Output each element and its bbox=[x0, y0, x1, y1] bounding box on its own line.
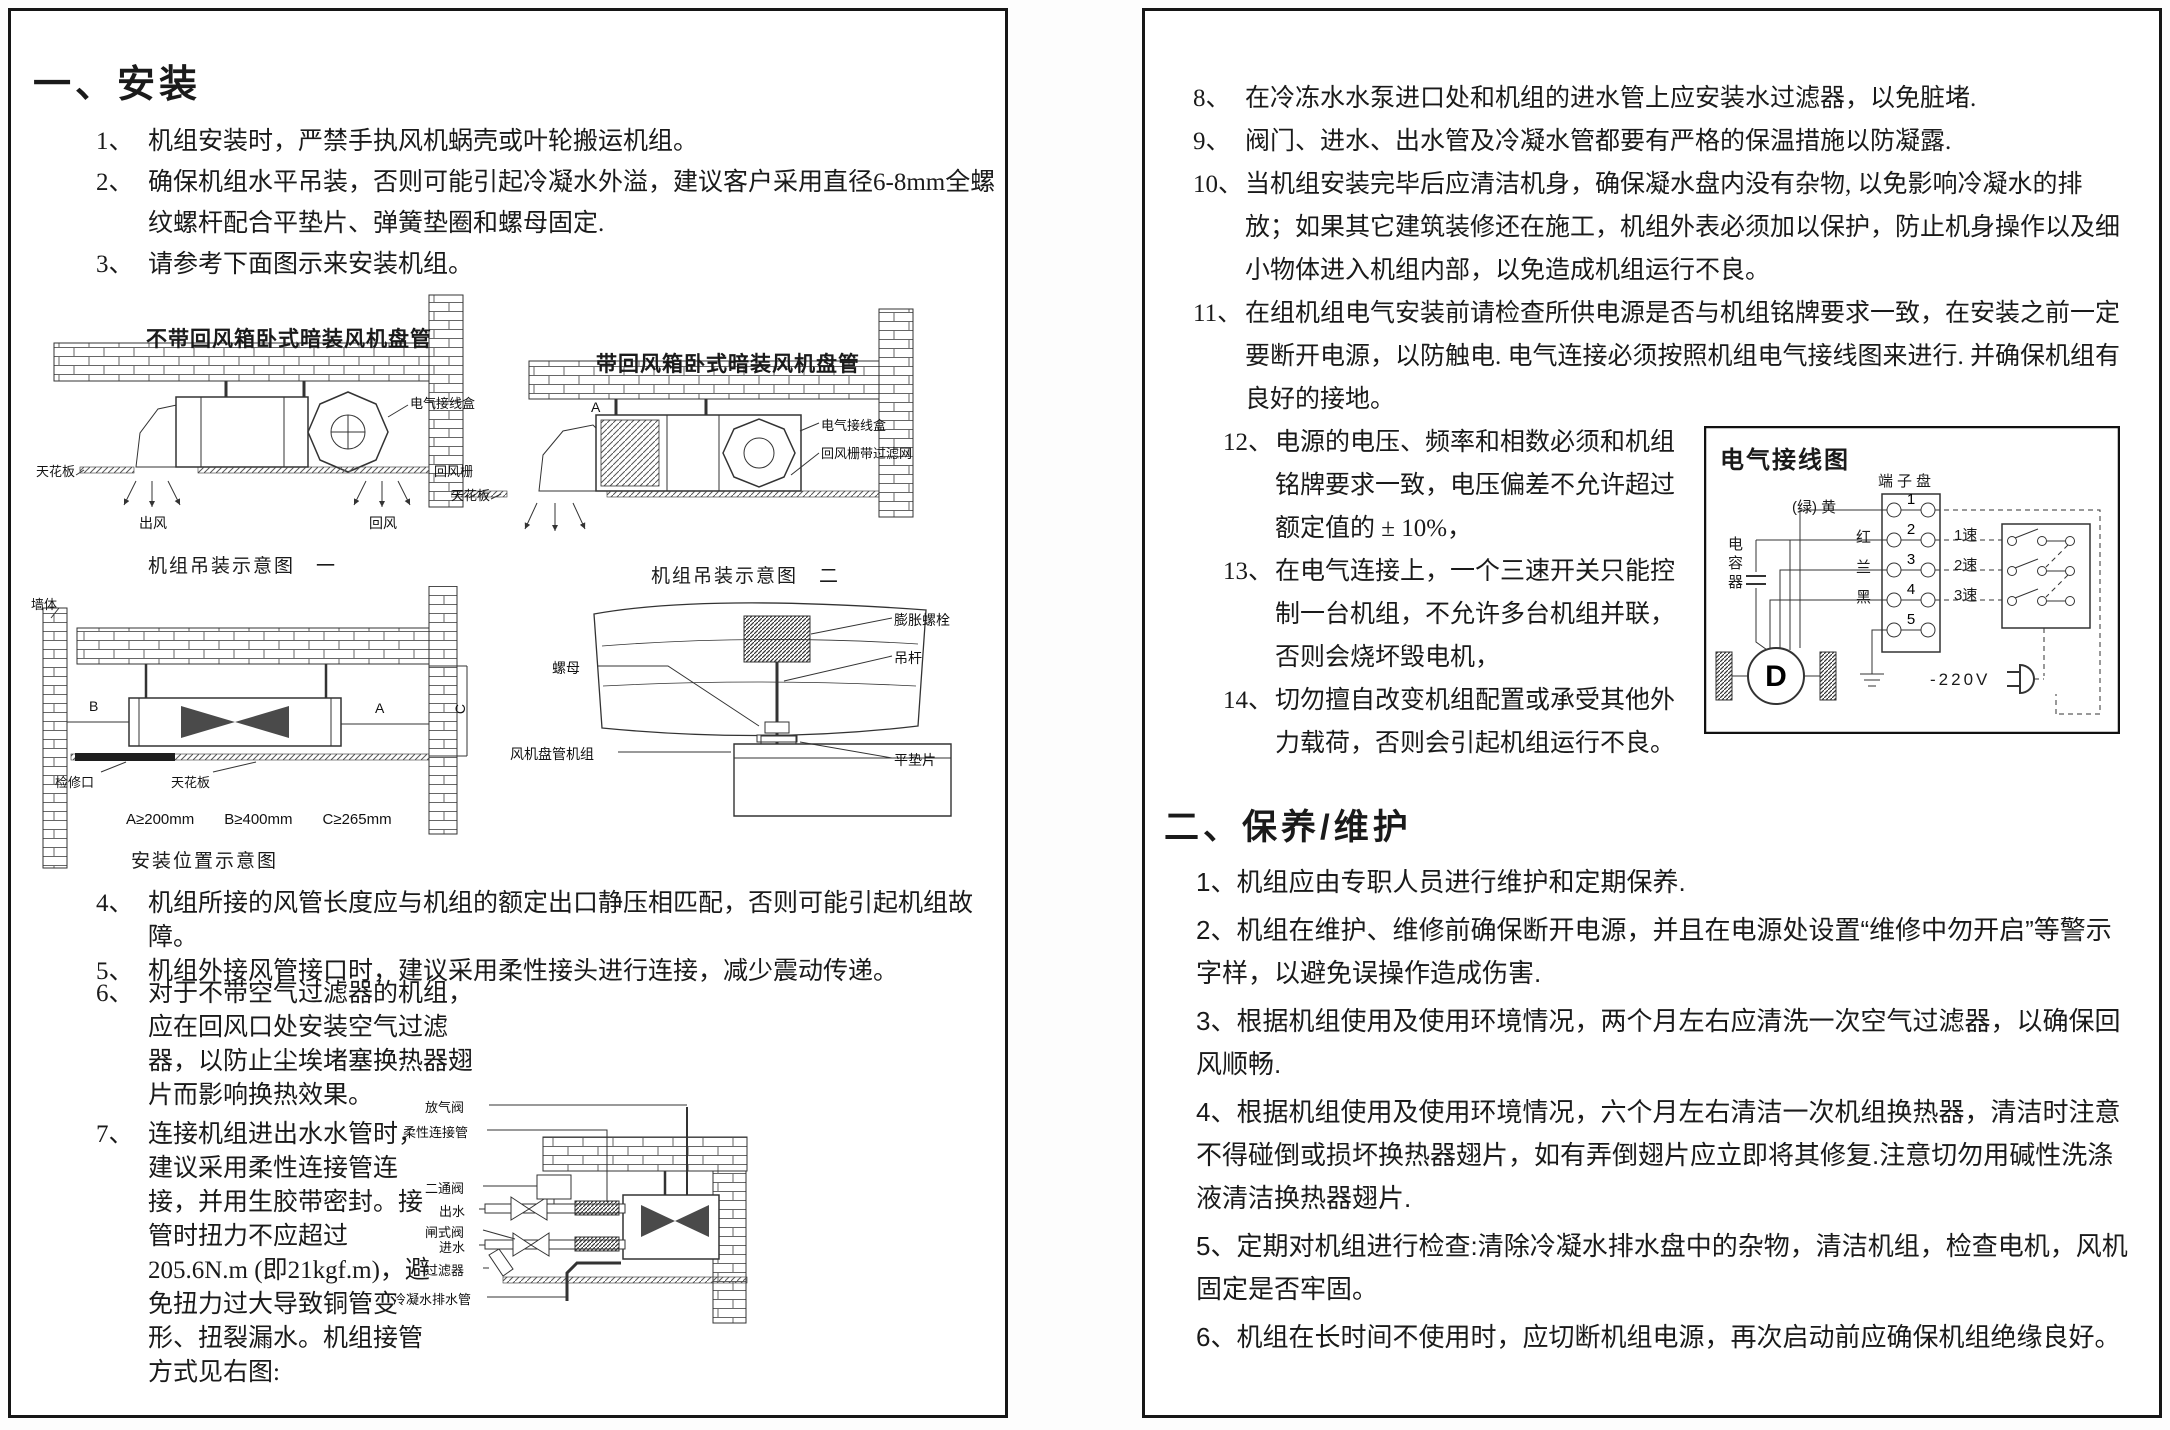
item-text: 阀门、进水、出水管及冷凝水管都要有严格的保温措施以防凝露. bbox=[1245, 120, 2123, 163]
terminal-3: 3 bbox=[1907, 551, 1915, 568]
diagram-hanger-detail: 螺母 风机盘管机组 膨胀螺栓 吊杆 平垫片 bbox=[506, 586, 1001, 881]
diagram-hanger-detail-art bbox=[506, 586, 1001, 881]
speed-2-label: 2速 bbox=[1954, 554, 1977, 575]
air-vent-label: 放气阀 bbox=[425, 1097, 464, 1116]
item-number: 4、 bbox=[96, 887, 148, 955]
item-text: 电源的电压、频率和相数必须和机组铭牌要求一致，电压偏差不允许超过额定值的 ± 1… bbox=[1275, 421, 1693, 550]
manual-scan: 一、安装 1、机组安装时，严禁手执风机蜗壳或叶轮搬运机组。 2、确保机组水平吊装… bbox=[0, 0, 2170, 1430]
ceiling-label: 天花板 bbox=[451, 485, 490, 504]
diagram-hanging-2-art bbox=[451, 303, 986, 578]
item-text: 机组所接的风管长度应与机组的额定出口静压相匹配，否则可能引起机组故障。 bbox=[148, 887, 996, 955]
item-number: 13、 bbox=[1223, 550, 1275, 679]
list-item: 4、机组所接的风管长度应与机组的额定出口静压相匹配，否则可能引起机组故障。 bbox=[96, 887, 996, 955]
list-item: 13、在电气连接上，一个三速开关只能控制一台机组，不允许多台机组并联，否则会烧坏… bbox=[1223, 550, 1693, 679]
wire-label-blue: 兰 bbox=[1856, 556, 1871, 577]
diagram-piping: 放气阀 柔性连接管 二通阀 出水 闸式阀 进水 过滤器 冷凝水排水管 bbox=[275, 1083, 755, 1413]
install-items-4-5: 4、机组所接的风管长度应与机组的额定出口静压相匹配，否则可能引起机组故障。 5、… bbox=[96, 887, 996, 989]
return-filter-label: 回风栅带过滤网 bbox=[821, 443, 912, 462]
item-text: 确保机组水平吊装，否则可能引起冷凝水外溢，建议客户采用直径6-8mm全螺纹螺杆配… bbox=[148, 162, 996, 244]
return-air-label: 回风 bbox=[369, 513, 397, 533]
item-number: 5、 bbox=[1196, 1231, 1236, 1261]
terminal-2: 2 bbox=[1907, 521, 1915, 538]
two-way-valve-body bbox=[537, 1175, 571, 1199]
item-number: 4、 bbox=[1196, 1097, 1236, 1127]
leader-junction-box bbox=[800, 423, 819, 431]
leader-gate bbox=[483, 1230, 515, 1239]
diagram-position: 墙体 B A C 检修口 天花板 A≥200mm B≥400mm C≥265mm… bbox=[31, 586, 506, 881]
unit-body bbox=[176, 397, 308, 467]
list-item: 2、机组在维护、维修前确保断开电源，并且在电源处设置“维修中勿开启”等警示字样，… bbox=[1196, 909, 2136, 995]
nut-shape bbox=[765, 722, 789, 733]
terminal-4: 4 bbox=[1907, 581, 1915, 598]
item-text: 根据机组使用及使用环境情况，两个月左右应清洗一次空气过滤器，以确保回风顺畅. bbox=[1196, 1006, 2120, 1079]
capacitor-label: 电容器 bbox=[1724, 536, 1745, 616]
list-item: 4、根据机组使用及使用环境情况，六个月左右清洁一次机组换热器，清洁时注意不得碰倒… bbox=[1196, 1091, 2136, 1220]
coil-right bbox=[1820, 652, 1836, 700]
valve-shape bbox=[529, 1197, 547, 1220]
list-item: 12、电源的电压、频率和相数必须和机组铭牌要求一致，电压偏差不允许超过额定值的 … bbox=[1223, 421, 1693, 550]
flex-section bbox=[575, 1237, 619, 1251]
water-in-label: 进水 bbox=[439, 1237, 465, 1256]
leader-ceiling bbox=[213, 762, 256, 772]
list-item: 9、阀门、进水、出水管及冷凝水管都要有严格的保温措施以防凝露. bbox=[1193, 120, 2123, 163]
list-item: 6、机组在长时间不使用时，应切断机组电源，再次启动前应确保机组绝缘良好。 bbox=[1196, 1316, 2136, 1359]
item-text: 机组应由专职人员进行维护和定期保养. bbox=[1236, 867, 1685, 897]
item-text: 切勿擅自改变机组配置或承受其他外力载荷，否则会引起机组运行不良。 bbox=[1275, 679, 1693, 765]
item-text: 当机组安装完毕后应清洁机身，确保凝水盘内没有杂物, 以免影响冷凝水的排放；如果其… bbox=[1245, 163, 2123, 292]
item-number: 7、 bbox=[96, 1118, 148, 1390]
wall-label: 墙体 bbox=[31, 594, 57, 613]
item-text: 机组安装时，严禁手执风机蜗壳或叶轮搬运机组。 bbox=[148, 121, 996, 162]
item-text: 请参考下面图示来安装机组。 bbox=[148, 244, 996, 285]
install-items-1-3: 1、机组安装时，严禁手执风机蜗壳或叶轮搬运机组。 2、确保机组水平吊装，否则可能… bbox=[96, 121, 996, 285]
dim-c-label: C bbox=[452, 704, 468, 714]
section-title-install: 一、安装 bbox=[33, 53, 201, 108]
dimension-values: A≥200mm B≥400mm C≥265mm bbox=[126, 808, 392, 829]
speed-3-label: 3速 bbox=[1954, 584, 1977, 605]
leader-junction-box bbox=[388, 405, 408, 417]
item-number: 1、 bbox=[96, 121, 148, 162]
wiring-title: 电气接线图 bbox=[1720, 440, 1850, 475]
list-item: 5、定期对机组进行检查:清除冷凝水排水盘中的杂物，清洁机组，检查电机，风机固定是… bbox=[1196, 1225, 2136, 1311]
supply-air-label: 出风 bbox=[139, 513, 167, 533]
strainer-label: 过滤器 bbox=[425, 1260, 464, 1279]
diagram-caption: 机组吊装示意图 一 bbox=[148, 551, 337, 578]
ceiling-line bbox=[607, 491, 879, 497]
ceiling-line bbox=[198, 467, 429, 473]
coil-left bbox=[1716, 652, 1732, 700]
item-number: 12、 bbox=[1223, 421, 1275, 550]
rod-label: 吊杆 bbox=[894, 648, 922, 668]
ceiling-slab bbox=[77, 628, 429, 664]
valve-shape bbox=[511, 1197, 529, 1220]
diagram-position-art bbox=[31, 586, 506, 881]
item-number: 11、 bbox=[1193, 292, 1245, 421]
leader-access bbox=[101, 762, 126, 772]
list-item: 1、机组应由专职人员进行维护和定期保养. bbox=[1196, 861, 2136, 904]
item-number: 6、 bbox=[96, 977, 148, 1113]
ceiling-line bbox=[80, 467, 134, 473]
two-way-valve-label: 二通阀 bbox=[425, 1178, 464, 1197]
diagram-piping-art bbox=[275, 1083, 755, 1413]
item-number: 2、 bbox=[96, 162, 148, 244]
item-number: 1、 bbox=[1196, 867, 1236, 897]
terminal-strip-label: 端子盘 bbox=[1878, 470, 1935, 491]
list-item: 8、在冷冻水水泵进口处和机组的进水管上应安装水过滤器，以免脏堵. bbox=[1193, 77, 2123, 120]
list-item: 3、请参考下面图示来安装机组。 bbox=[96, 244, 996, 285]
dim-b-label: B bbox=[89, 698, 98, 714]
valve-shape bbox=[531, 1233, 549, 1256]
hanger-rods bbox=[616, 399, 706, 415]
item-number: 3、 bbox=[96, 244, 148, 285]
wall-column bbox=[879, 309, 913, 517]
item-text: 在电气连接上，一个三速开关只能控制一台机组，不允许多台机组并联，否则会烧坏毁电机… bbox=[1275, 550, 1693, 679]
page-install-cont-maintenance: 8、在冷冻水水泵进口处和机组的进水管上应安装水过滤器，以免脏堵. 9、阀门、进水… bbox=[1142, 8, 2162, 1418]
nut-label: 螺母 bbox=[552, 658, 580, 678]
terminal-1: 1 bbox=[1907, 491, 1915, 508]
washer-label: 平垫片 bbox=[894, 750, 936, 770]
unit-label: 风机盘管机组 bbox=[510, 744, 594, 764]
ceiling-slab bbox=[543, 1137, 747, 1171]
wire-label-red: 红 bbox=[1856, 526, 1871, 547]
drain-label: 冷凝水排水管 bbox=[393, 1289, 471, 1308]
wire-label-yellow: (绿) 黄 bbox=[1792, 496, 1836, 517]
ceiling-label: 天花板 bbox=[171, 772, 210, 791]
list-item: 2、确保机组水平吊装，否则可能引起冷凝水外溢，建议客户采用直径6-8mm全螺纹螺… bbox=[96, 162, 996, 244]
maintenance-items: 1、机组应由专职人员进行维护和定期保养. 2、机组在维护、维修前确保断开电源，并… bbox=[1196, 861, 2136, 1364]
access-label: 检修口 bbox=[55, 772, 94, 791]
item-text: 根据机组使用及使用环境情况，六个月左右清洁一次机组换热器，清洁时注意不得碰倒或损… bbox=[1196, 1097, 2120, 1213]
dim-a-label: A bbox=[591, 399, 600, 415]
flex-label: 柔性连接管 bbox=[403, 1122, 468, 1141]
dim-a-line bbox=[341, 716, 429, 732]
diagram-wiring: 1 2 3 4 5 D bbox=[1704, 426, 2120, 734]
anchor-block bbox=[744, 616, 810, 662]
return-box-filter bbox=[601, 420, 659, 486]
diagram-title: 带回风箱卧式暗装风机盘管 bbox=[596, 348, 860, 378]
diagram-hanging-2: 带回风箱卧式暗装风机盘管 A 电气接线盒 回风栅带过滤网 天花板 机组吊装示意图… bbox=[451, 303, 986, 578]
list-item: 14、切勿擅自改变机组配置或承受其他外力载荷，否则会引起机组运行不良。 bbox=[1223, 679, 1693, 765]
item-number: 9、 bbox=[1193, 120, 1245, 163]
strainer-shape bbox=[489, 1249, 513, 1276]
item-text: 在冷冻水水泵进口处和机组的进水管上应安装水过滤器，以免脏堵. bbox=[1245, 77, 2123, 120]
section-title-maintenance: 二、保养/维护 bbox=[1164, 799, 1412, 850]
list-item: 10、当机组安装完毕后应清洁机身，确保凝水盘内没有杂物, 以免影响冷凝水的排放；… bbox=[1193, 163, 2123, 292]
item-text: 机组在维护、维修前确保断开电源，并且在电源处设置“维修中勿开启”等警示字样，以避… bbox=[1196, 915, 2112, 988]
ceiling-line bbox=[503, 1277, 747, 1283]
junction-box-label: 电气接线盒 bbox=[821, 415, 886, 434]
access-panel bbox=[75, 753, 175, 761]
power-label: -220V bbox=[1930, 670, 1990, 690]
anchor-bolt-label: 膨胀螺栓 bbox=[894, 610, 950, 630]
wire-label-black: 黑 bbox=[1856, 586, 1871, 607]
dim-b-line bbox=[67, 714, 129, 730]
diagram-hanging-1: 不带回风箱卧式暗装风机盘管 电气接线盒 天花板 回风栅 出风 回风 机组吊装示意… bbox=[36, 293, 491, 578]
item-text: 机组在长时间不使用时，应切断机组电源，再次启动前应确保机组绝缘良好。 bbox=[1236, 1322, 2120, 1352]
item-text: 定期对机组进行检查:清除冷凝水排水盘中的杂物，清洁机组，检查电机，风机固定是否牢… bbox=[1196, 1231, 2128, 1304]
item-number: 6、 bbox=[1196, 1322, 1236, 1352]
ceiling-label: 天花板 bbox=[36, 461, 75, 480]
valve-shape bbox=[513, 1233, 531, 1256]
item-number: 10、 bbox=[1193, 163, 1245, 292]
diagram-caption: 安装位置示意图 bbox=[131, 846, 278, 873]
wall-left bbox=[43, 608, 67, 868]
item-text: 在组机组电气安装前请检查所供电源是否与机组铭牌要求一致，在安装之前一定要断开电源… bbox=[1245, 292, 2123, 421]
diagram-caption: 机组吊装示意图 二 bbox=[651, 561, 840, 588]
item-number: 3、 bbox=[1196, 1006, 1236, 1036]
list-item: 11、在组机组电气安装前请检查所供电源是否与机组铭牌要求一致，在安装之前一定要断… bbox=[1193, 292, 2123, 421]
page-installation: 一、安装 1、机组安装时，严禁手执风机蜗壳或叶轮搬运机组。 2、确保机组水平吊装… bbox=[8, 8, 1008, 1418]
water-out-label: 出水 bbox=[439, 1201, 465, 1220]
fan-hub bbox=[744, 438, 774, 468]
flex-section bbox=[575, 1201, 619, 1215]
speed-1-label: 1速 bbox=[1954, 524, 1977, 545]
motor-letter: D bbox=[1765, 660, 1787, 693]
diagram-title: 不带回风箱卧式暗装风机盘管 bbox=[146, 323, 432, 353]
terminal-5: 5 bbox=[1907, 611, 1915, 628]
hanger-rods bbox=[146, 664, 326, 698]
list-item: 3、根据机组使用及使用环境情况，两个月左右应清洗一次空气过滤器，以确保回风顺畅. bbox=[1196, 1000, 2136, 1086]
item-number: 2、 bbox=[1196, 915, 1236, 945]
terminal-strip-box bbox=[1882, 494, 1940, 652]
item-number: 14、 bbox=[1223, 679, 1275, 765]
hanger-rods bbox=[226, 381, 304, 397]
list-item: 1、机组安装时，严禁手执风机蜗壳或叶轮搬运机组。 bbox=[96, 121, 996, 162]
item-number: 8、 bbox=[1193, 77, 1245, 120]
dim-a-label: A bbox=[375, 700, 384, 716]
